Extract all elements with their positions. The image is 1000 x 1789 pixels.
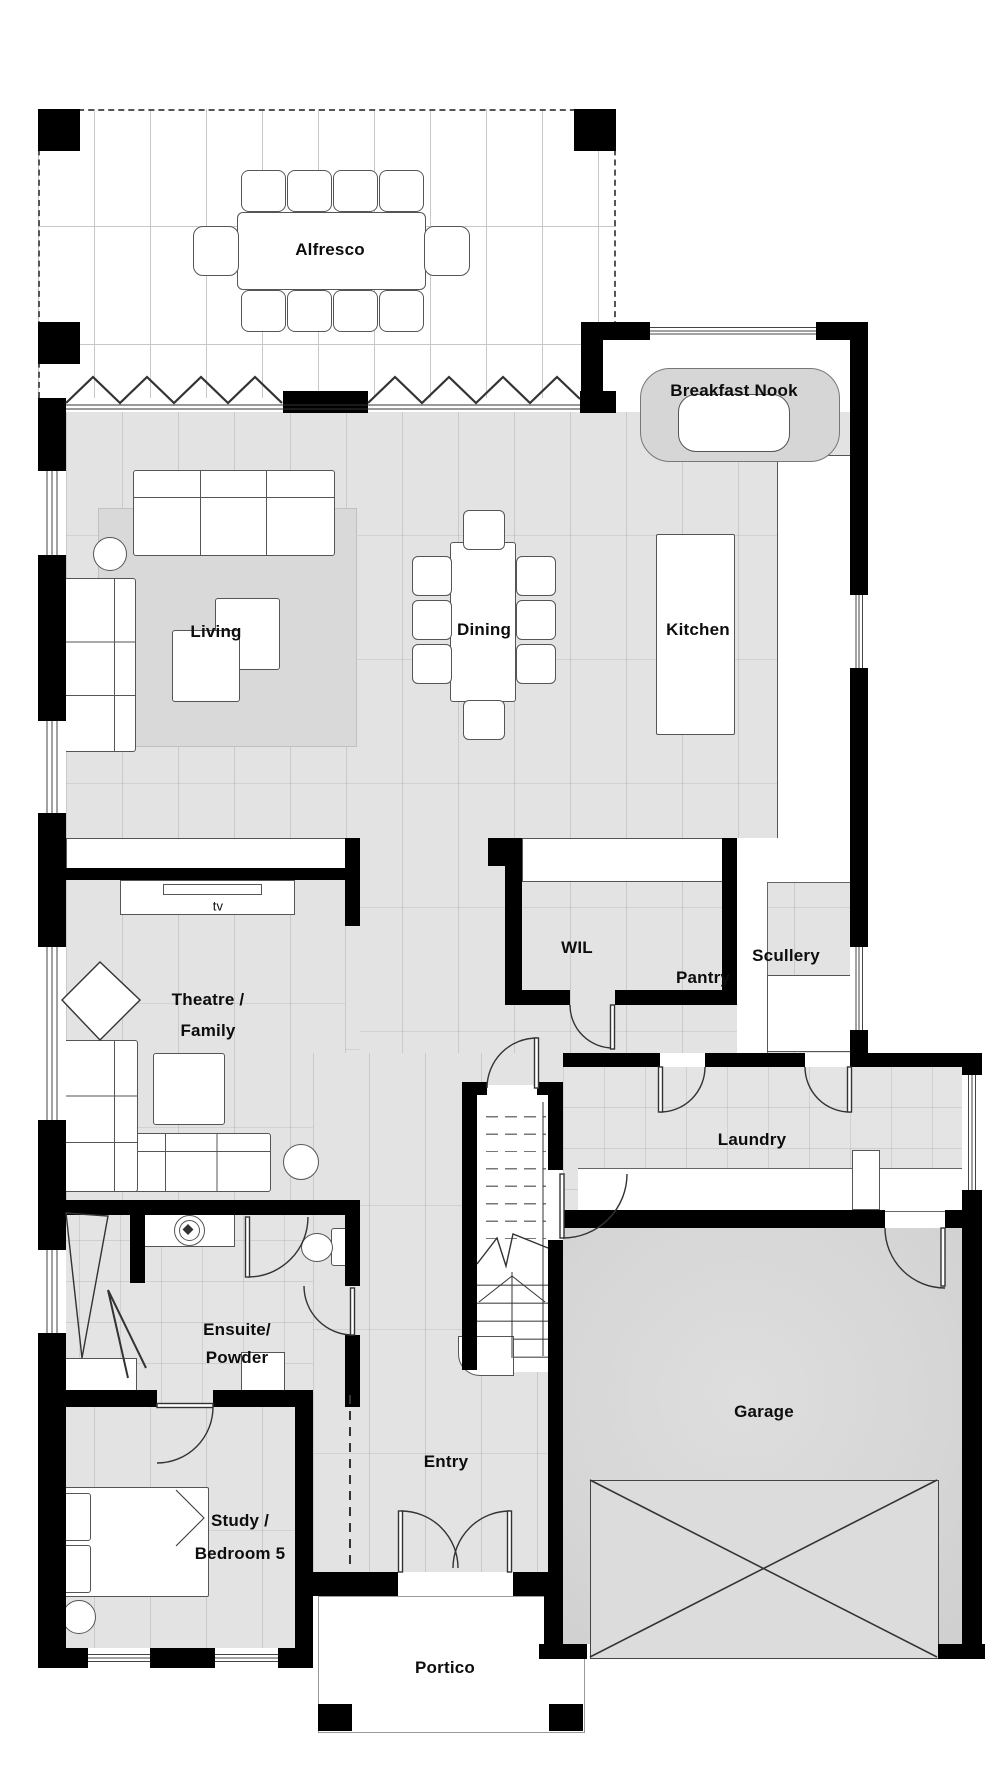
- floor-plan: Alfresco Breakfast Nook Living Dining Ki…: [0, 0, 1000, 1789]
- alfresco-chair: [193, 226, 239, 276]
- theatre-window: [38, 947, 66, 1120]
- laundry-right-wall: [962, 1190, 982, 1210]
- ensuite-right-wall: [345, 1335, 360, 1407]
- dining-chair: [412, 556, 452, 596]
- dining-chair: [412, 600, 452, 640]
- pillow: [63, 1493, 91, 1541]
- label-entry: Entry: [424, 1452, 468, 1472]
- laundry-right-wall: [962, 1067, 982, 1075]
- wall-right: [850, 322, 868, 595]
- kitchen-counter: [777, 455, 852, 840]
- alfresco-chair: [424, 226, 470, 276]
- label-living: Living: [190, 622, 241, 642]
- portico-pillar: [549, 1704, 583, 1731]
- theatre-bottom-wall: [66, 1200, 360, 1215]
- basin-inner: [179, 1220, 200, 1241]
- nook-window: [650, 322, 816, 340]
- label-study-1: Study /: [211, 1511, 269, 1531]
- living-side-table: [93, 537, 127, 571]
- laundry-bench: [578, 1168, 962, 1212]
- alfresco-column: [38, 322, 80, 364]
- tv-screen: [163, 884, 262, 895]
- label-kitchen: Kitchen: [666, 620, 730, 640]
- nook-left-wall: [581, 322, 603, 395]
- wall-right: [850, 668, 868, 947]
- theatre-chaise: [60, 1040, 138, 1192]
- shower-divider-wall: [130, 1205, 145, 1283]
- garage-bottom-wall: [938, 1644, 985, 1659]
- garage-right-wall: [962, 1210, 982, 1659]
- wil-left-wall: [505, 838, 522, 1005]
- wall-left: [38, 398, 66, 471]
- alfresco-stool: [379, 170, 424, 212]
- wall-left: [38, 555, 66, 721]
- kitchen-back-counter: [522, 838, 724, 882]
- scullery-bottom-wall: [563, 1053, 660, 1067]
- bedside-table: [62, 1600, 96, 1634]
- alfresco-stool: [241, 290, 286, 332]
- dining-chair: [516, 556, 556, 596]
- label-study-2: Bedroom 5: [195, 1544, 286, 1564]
- stair-top-wall: [462, 1082, 487, 1095]
- ensuite-window: [38, 1250, 66, 1333]
- label-ensuite-2: Powder: [206, 1348, 269, 1368]
- label-scullery: Scullery: [752, 946, 820, 966]
- label-laundry: Laundry: [718, 1130, 786, 1150]
- label-ensuite-1: Ensuite/: [203, 1320, 271, 1340]
- wall-left: [38, 1120, 66, 1250]
- ensuite-bottom-wall: [38, 1390, 157, 1407]
- garage-door-zone: [590, 1480, 939, 1659]
- alfresco-column: [574, 109, 616, 151]
- hall-floor: [313, 1053, 563, 1082]
- counter-pier: [488, 838, 505, 866]
- alfresco-stool: [333, 170, 378, 212]
- media-niche: [66, 838, 347, 870]
- portico-pillar: [318, 1704, 352, 1731]
- ensuite-bottom-wall: [213, 1390, 295, 1407]
- study-window: [215, 1648, 278, 1668]
- label-theatre-2: Family: [180, 1021, 235, 1041]
- living-window: [38, 721, 66, 813]
- label-garage: Garage: [734, 1402, 794, 1422]
- media-wall-return: [345, 838, 360, 926]
- garage-top-wall: [945, 1210, 982, 1228]
- pillow: [63, 1545, 91, 1593]
- alfresco-column: [38, 109, 80, 151]
- living-sofa: [133, 470, 335, 556]
- alfresco-stool: [333, 290, 378, 332]
- alfresco-stool: [241, 170, 286, 212]
- front-wall: [513, 1572, 563, 1596]
- living-window: [38, 471, 66, 555]
- theatre-side-table: [283, 1144, 319, 1180]
- label-dining: Dining: [457, 620, 511, 640]
- ensuite-right-wall: [345, 1200, 360, 1286]
- scullery-bottom-wall: [705, 1053, 805, 1067]
- media-wall: [66, 868, 360, 880]
- label-theatre-1: Theatre /: [172, 990, 245, 1010]
- toilet-bowl: [301, 1233, 333, 1262]
- label-alfresco: Alfresco: [295, 240, 365, 260]
- dining-chair: [516, 644, 556, 684]
- kitchen-window: [850, 595, 868, 668]
- garage-top-wall: [563, 1210, 885, 1228]
- theatre-coffee-table: [153, 1053, 225, 1125]
- living-chaise: [64, 578, 136, 752]
- label-tv: tv: [213, 899, 224, 914]
- wall-left: [38, 813, 66, 947]
- scullery-window: [850, 947, 868, 1030]
- study-right-wall: [295, 1390, 313, 1648]
- study-window: [88, 1648, 150, 1668]
- stair-top-wall: [537, 1082, 563, 1095]
- wil-bottom-wall: [615, 990, 722, 1005]
- study-front-wall: [150, 1648, 215, 1668]
- alfresco-stool: [287, 290, 332, 332]
- garage-bottom-wall: [539, 1644, 587, 1659]
- breakfast-nook-table: [678, 394, 790, 452]
- dining-chair: [412, 644, 452, 684]
- study-front-wall: [278, 1648, 313, 1668]
- label-breakfast-nook: Breakfast Nook: [670, 381, 798, 401]
- pantry-counter-top: [737, 838, 850, 883]
- stair-wall-left: [462, 1082, 477, 1370]
- front-wall: [313, 1572, 398, 1596]
- laundry-window: [962, 1075, 982, 1190]
- dining-chair: [463, 510, 505, 550]
- stair-wall-right: [548, 1082, 563, 1170]
- entry-garage-wall: [548, 1240, 563, 1572]
- pantry-shelf-strip: [737, 882, 768, 1053]
- wil-bottom-wall: [505, 990, 570, 1005]
- label-pantry: Pantry: [676, 968, 730, 988]
- alfresco-stool: [379, 290, 424, 332]
- label-wil: WIL: [561, 938, 593, 958]
- hall-sliver-floor: [345, 926, 360, 1053]
- label-portico: Portico: [415, 1658, 475, 1678]
- alfresco-stool: [287, 170, 332, 212]
- step-out-wall: [850, 1053, 982, 1067]
- study-front-wall: [38, 1648, 88, 1668]
- wall-left: [38, 1333, 66, 1668]
- scullery-bench: [767, 975, 852, 1052]
- stair-upper-treads: [479, 1100, 546, 1242]
- dining-chair: [516, 600, 556, 640]
- dining-chair: [463, 700, 505, 740]
- laundry-cabinet: [852, 1150, 880, 1210]
- bifold-pier: [283, 391, 368, 413]
